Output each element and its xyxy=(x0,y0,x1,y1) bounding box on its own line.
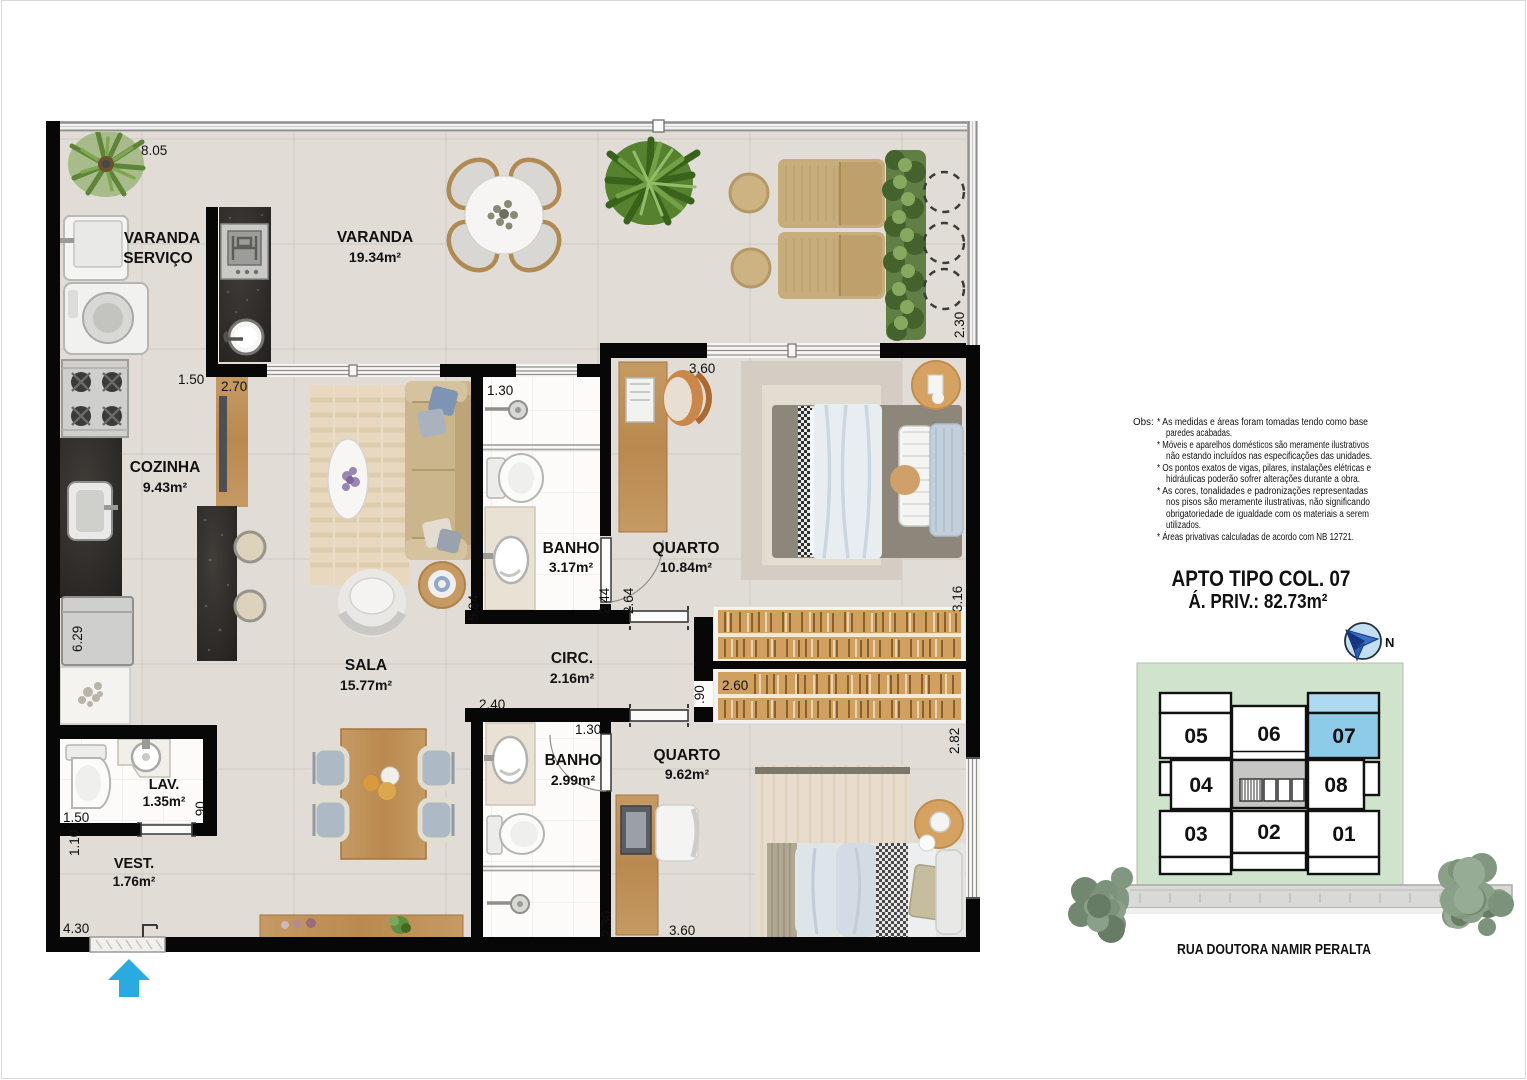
svg-text:3.17m²: 3.17m² xyxy=(549,559,594,575)
svg-text:2.30: 2.30 xyxy=(599,911,614,937)
svg-text:05: 05 xyxy=(1184,725,1208,748)
svg-text:BANHO: BANHO xyxy=(543,540,600,557)
svg-text:APTO TIPO COL. 07: APTO TIPO COL. 07 xyxy=(1172,566,1351,591)
svg-text:CIRC.: CIRC. xyxy=(551,650,593,667)
svg-text:QUARTO: QUARTO xyxy=(653,540,720,557)
svg-text:07: 07 xyxy=(1332,725,1355,748)
svg-text:08: 08 xyxy=(1324,774,1348,797)
svg-text:.90: .90 xyxy=(692,685,707,704)
svg-text:4.30: 4.30 xyxy=(63,921,89,936)
svg-text:SALA: SALA xyxy=(345,657,387,674)
svg-text:1.50: 1.50 xyxy=(178,372,204,387)
svg-text:COZINHA: COZINHA xyxy=(130,459,201,476)
svg-text:5.84: 5.84 xyxy=(466,594,481,621)
svg-text:paredes acabadas.: paredes acabadas. xyxy=(1166,428,1232,439)
svg-text:VEST.: VEST. xyxy=(114,856,154,872)
svg-text:1.30: 1.30 xyxy=(487,383,513,398)
svg-text:04: 04 xyxy=(1189,774,1213,797)
svg-text:19.34m²: 19.34m² xyxy=(349,249,401,265)
svg-text:02: 02 xyxy=(1257,821,1280,844)
svg-text:2.60: 2.60 xyxy=(722,678,748,693)
svg-text:* As cores, tonalidades e padr: * As cores, tonalidades e padronizações … xyxy=(1157,486,1368,497)
svg-text:SERVIÇO: SERVIÇO xyxy=(123,250,193,267)
svg-text:* Áreas privativas calculadas: * Áreas privativas calculadas de acordo … xyxy=(1157,532,1354,543)
svg-text:6.29: 6.29 xyxy=(70,626,85,652)
svg-text:utilizados.: utilizados. xyxy=(1166,520,1201,531)
svg-text:.90: .90 xyxy=(193,801,208,820)
svg-text:9.43m²: 9.43m² xyxy=(143,479,188,495)
svg-text:2.82: 2.82 xyxy=(947,728,962,754)
svg-text:RUA DOUTORA NAMIR PERALTA: RUA DOUTORA NAMIR PERALTA xyxy=(1177,942,1371,958)
svg-text:3.60: 3.60 xyxy=(669,923,695,938)
svg-text:06: 06 xyxy=(1257,723,1280,746)
svg-text:VARANDA: VARANDA xyxy=(124,230,200,247)
svg-text:1.76m²: 1.76m² xyxy=(113,874,156,889)
svg-text:2.16m²: 2.16m² xyxy=(550,670,595,686)
svg-text:2.30: 2.30 xyxy=(952,312,967,338)
svg-text:1.35m²: 1.35m² xyxy=(143,794,186,809)
svg-text:VARANDA: VARANDA xyxy=(337,229,413,246)
svg-text:8.05: 8.05 xyxy=(141,143,167,158)
svg-text:2.40: 2.40 xyxy=(479,697,505,712)
svg-text:1.50: 1.50 xyxy=(63,810,89,825)
svg-text:QUARTO: QUARTO xyxy=(654,747,721,764)
svg-text:* Móveis e aparelhos doméstico: * Móveis e aparelhos domésticos são mera… xyxy=(1157,440,1369,451)
svg-text:hidráulicas poderão sofrer alt: hidráulicas poderão sofrer alterações du… xyxy=(1166,474,1360,485)
svg-text:BANHO: BANHO xyxy=(545,752,602,769)
svg-text:N: N xyxy=(1385,635,1394,650)
svg-text:* As medidas e áreas foram tom: * As medidas e áreas foram tomadas tendo… xyxy=(1157,417,1368,428)
svg-text:obrigatoriedade de igualdade c: obrigatoriedade de igualdade com os mate… xyxy=(1166,509,1369,520)
svg-text:nos pisos são meramente ilustr: nos pisos são meramente ilustrativas, nã… xyxy=(1166,497,1370,508)
svg-text:1.10: 1.10 xyxy=(67,830,82,856)
svg-text:2.44: 2.44 xyxy=(597,587,612,614)
svg-text:01: 01 xyxy=(1332,823,1356,846)
svg-text:Obs:: Obs: xyxy=(1133,417,1154,428)
svg-text:9.62m²: 9.62m² xyxy=(665,766,710,782)
svg-text:3.60: 3.60 xyxy=(689,361,715,376)
svg-text:15.77m²: 15.77m² xyxy=(340,677,392,693)
svg-text:3.16: 3.16 xyxy=(950,586,965,612)
svg-text:LAV.: LAV. xyxy=(149,777,180,793)
svg-text:1.30: 1.30 xyxy=(575,722,601,737)
svg-text:2.70: 2.70 xyxy=(221,379,247,394)
svg-text:Á. PRIV.: 82.73m²: Á. PRIV.: 82.73m² xyxy=(1189,590,1328,613)
svg-text:* Os pontos exatos de vigas, p: * Os pontos exatos de vigas, pilares, in… xyxy=(1157,463,1371,474)
svg-text:03: 03 xyxy=(1184,823,1207,846)
svg-text:2.64: 2.64 xyxy=(621,587,636,614)
svg-text:10.84m²: 10.84m² xyxy=(660,559,712,575)
svg-text:não estando incluídos nas espe: não estando incluídos nas especificações… xyxy=(1166,451,1372,462)
svg-text:2.99m²: 2.99m² xyxy=(551,772,596,788)
